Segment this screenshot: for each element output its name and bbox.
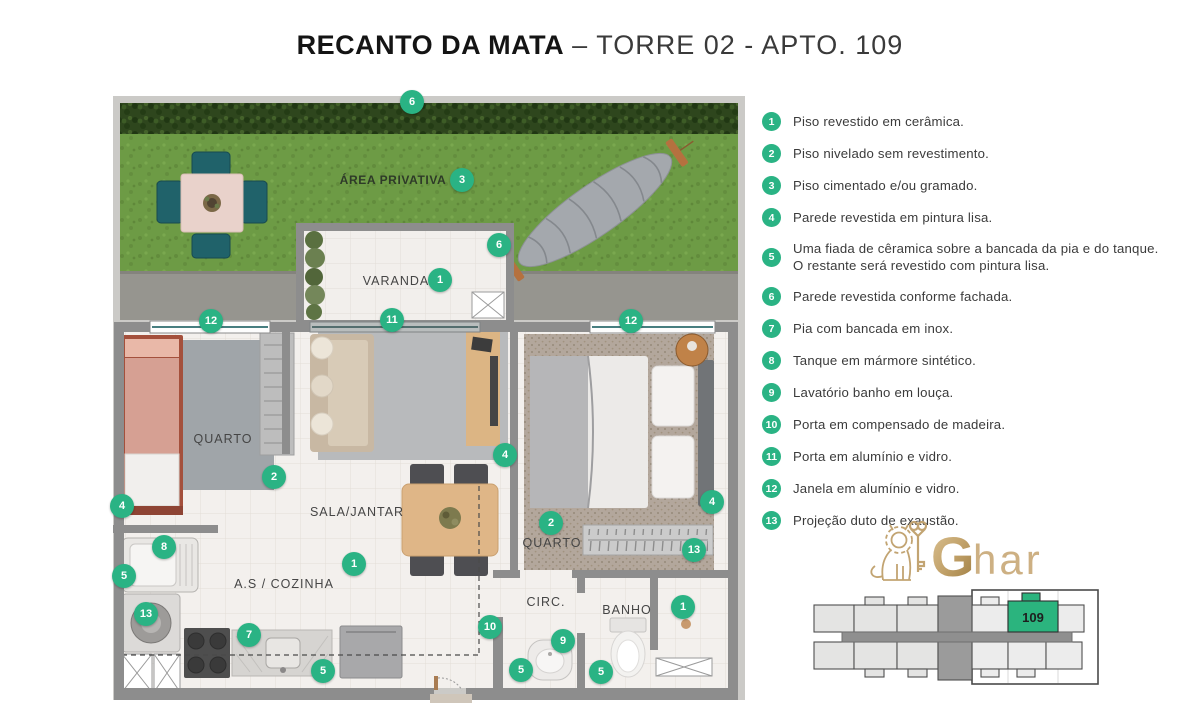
- plan-marker-6: 6: [400, 90, 424, 114]
- brand-logo-graphic: G har: [845, 514, 1060, 590]
- plan-marker-10: 10: [478, 615, 502, 639]
- legend-item-6: 6Parede revestida conforme fachada.: [762, 287, 1196, 306]
- legend-item-4: 4Parede revestida em pintura lisa.: [762, 208, 1196, 227]
- legend-text: Lavatório banho em louça.: [793, 384, 953, 401]
- legend-text: Uma fiada de cêramica sobre a bancada da…: [793, 240, 1159, 274]
- lion-icon: [871, 525, 912, 580]
- plan-marker-9: 9: [551, 629, 575, 653]
- legend-badge: 5: [762, 248, 781, 267]
- room-label: QUARTO: [522, 536, 581, 550]
- legend-item-11: 11Porta em alumínio e vidro.: [762, 447, 1196, 466]
- legend-badge: 6: [762, 287, 781, 306]
- plan-marker-11: 11: [380, 308, 404, 332]
- plan-marker-2: 2: [262, 465, 286, 489]
- legend-item-10: 10Porta em compensado de madeira.: [762, 415, 1196, 434]
- plan-marker-5: 5: [589, 660, 613, 684]
- building-keyplan: 109: [812, 586, 1102, 695]
- legend-badge: 9: [762, 383, 781, 402]
- page-title: RECANTO DA MATA – TORRE 02 - APTO. 109: [0, 30, 1200, 61]
- legend-badge: 12: [762, 479, 781, 498]
- legend-item-1: 1Piso revestido em cerâmica.: [762, 112, 1196, 131]
- room-label: ÁREA PRIVATIVA: [340, 173, 447, 187]
- legend-badge: 10: [762, 415, 781, 434]
- plan-marker-1: 1: [342, 552, 366, 576]
- plan-marker-4: 4: [700, 490, 724, 514]
- project-name: RECANTO DA MATA: [297, 30, 564, 60]
- plan-marker-3: 3: [450, 168, 474, 192]
- legend-badge: 2: [762, 144, 781, 163]
- plan-marker-5: 5: [509, 658, 533, 682]
- legend-text: Piso revestido em cerâmica.: [793, 113, 964, 130]
- room-label: A.S / COZINHA: [234, 577, 334, 591]
- legend-badge: 1: [762, 112, 781, 131]
- plan-marker-7: 7: [237, 623, 261, 647]
- plan-marker-12: 12: [619, 309, 643, 333]
- legend-text: Parede revestida conforme fachada.: [793, 288, 1012, 305]
- room-label: SALA/JANTAR: [310, 505, 404, 519]
- keyplan-corridor: [842, 632, 1072, 642]
- legend-badge: 7: [762, 319, 781, 338]
- plan-marker-13: 13: [682, 538, 706, 562]
- legend-text: Porta em alumínio e vidro.: [793, 448, 952, 465]
- plan-marker-6: 6: [487, 233, 511, 257]
- floor-plan: ÁREA PRIVATIVAVARANDAQUARTOSALA/JANTARQU…: [100, 88, 745, 703]
- legend-item-5: 5Uma fiada de cêramica sobre a bancada d…: [762, 240, 1196, 274]
- legend-badge: 3: [762, 176, 781, 195]
- plan-marker-5: 5: [311, 659, 335, 683]
- legend-item-12: 12Janela em alumínio e vidro.: [762, 479, 1196, 498]
- legend-badge: 8: [762, 351, 781, 370]
- keyplan-unit-number: 109: [1022, 610, 1044, 625]
- legend-text: Tanque em mármore sintético.: [793, 352, 976, 369]
- legend-item-7: 7Pia com bancada em inox.: [762, 319, 1196, 338]
- room-label: CIRC.: [526, 595, 565, 609]
- legend-item-8: 8Tanque em mármore sintético.: [762, 351, 1196, 370]
- plan-marker-13: 13: [134, 602, 158, 626]
- brand-logo: G har: [845, 514, 1060, 595]
- plan-marker-4: 4: [493, 443, 517, 467]
- logo-letters-har: har: [973, 536, 1043, 583]
- legend-text: Piso cimentado e/ou gramado.: [793, 177, 977, 194]
- legend-text: Janela em alumínio e vidro.: [793, 480, 960, 497]
- legend-badge: 11: [762, 447, 781, 466]
- room-label: QUARTO: [193, 432, 252, 446]
- legend-badge: 13: [762, 511, 781, 530]
- unit-subtitle: – TORRE 02 - APTO. 109: [572, 30, 903, 60]
- finish-legend: 1Piso revestido em cerâmica.2Piso nivela…: [762, 112, 1196, 543]
- legend-text: Pia com bancada em inox.: [793, 320, 953, 337]
- room-label: BANHO: [602, 603, 651, 617]
- plan-annotations: ÁREA PRIVATIVAVARANDAQUARTOSALA/JANTARQU…: [100, 88, 745, 703]
- legend-badge: 4: [762, 208, 781, 227]
- logo-letter-g: G: [931, 525, 975, 588]
- plan-marker-12: 12: [199, 309, 223, 333]
- legend-text: Porta em compensado de madeira.: [793, 416, 1005, 433]
- building-keyplan-graphic: 109: [812, 586, 1102, 690]
- plan-marker-5: 5: [112, 564, 136, 588]
- legend-text: Parede revestida em pintura lisa.: [793, 209, 992, 226]
- legend-item-3: 3Piso cimentado e/ou gramado.: [762, 176, 1196, 195]
- legend-item-9: 9Lavatório banho em louça.: [762, 383, 1196, 402]
- plan-marker-1: 1: [671, 595, 695, 619]
- plan-marker-4: 4: [110, 494, 134, 518]
- plan-marker-2: 2: [539, 511, 563, 535]
- key-icon: [910, 522, 926, 572]
- plan-marker-8: 8: [152, 535, 176, 559]
- room-label: VARANDA: [363, 274, 430, 288]
- legend-item-2: 2Piso nivelado sem revestimento.: [762, 144, 1196, 163]
- plan-marker-1: 1: [428, 268, 452, 292]
- legend-text: Piso nivelado sem revestimento.: [793, 145, 989, 162]
